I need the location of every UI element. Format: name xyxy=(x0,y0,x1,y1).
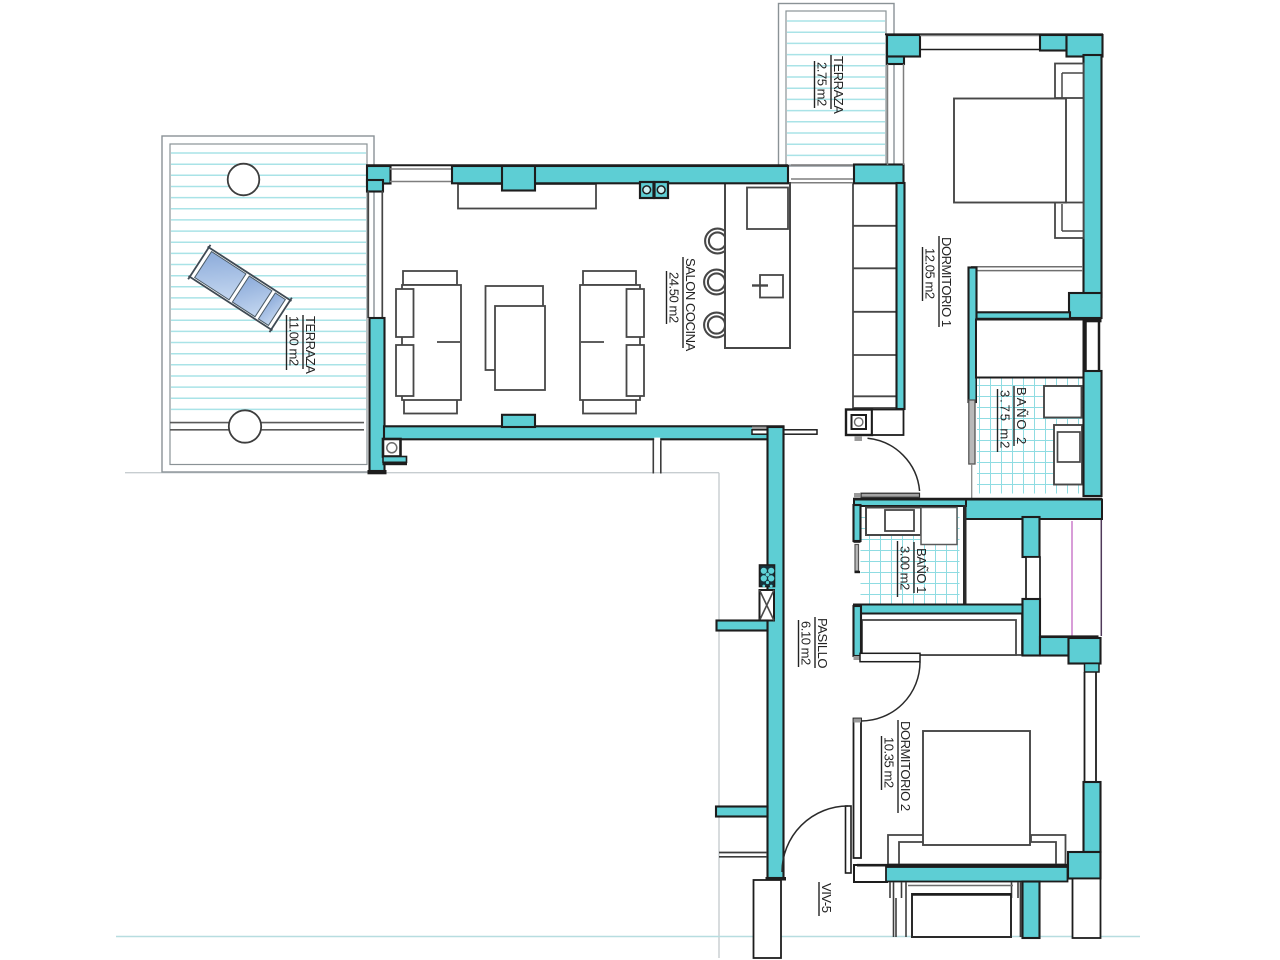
svg-text:12.05 m2: 12.05 m2 xyxy=(923,248,938,299)
svg-text:TERRAZA: TERRAZA xyxy=(831,56,846,114)
svg-text:24.50 m2: 24.50 m2 xyxy=(667,272,682,323)
svg-text:3.75 m2: 3.75 m2 xyxy=(998,390,1013,450)
svg-text:11.00 m2: 11.00 m2 xyxy=(287,316,302,366)
svg-text:VIV-5: VIV-5 xyxy=(819,883,834,913)
svg-text:6.10 m2: 6.10 m2 xyxy=(799,621,814,665)
svg-text:BAÑO 2: BAÑO 2 xyxy=(1014,387,1029,446)
svg-text:2.75 m2: 2.75 m2 xyxy=(815,62,830,106)
svg-text:DORMITORIO 2: DORMITORIO 2 xyxy=(898,721,913,811)
svg-text:10.35 m2: 10.35 m2 xyxy=(882,737,897,788)
svg-text:TERRAZA: TERRAZA xyxy=(303,316,318,374)
svg-text:PASILLO: PASILLO xyxy=(815,618,830,668)
svg-text:3.00 m2: 3.00 m2 xyxy=(898,546,913,590)
svg-text:DORMITORIO 1: DORMITORIO 1 xyxy=(939,237,954,327)
svg-text:BAÑO 1: BAÑO 1 xyxy=(914,548,929,593)
svg-text:SALON COCINA: SALON COCINA xyxy=(683,258,698,352)
